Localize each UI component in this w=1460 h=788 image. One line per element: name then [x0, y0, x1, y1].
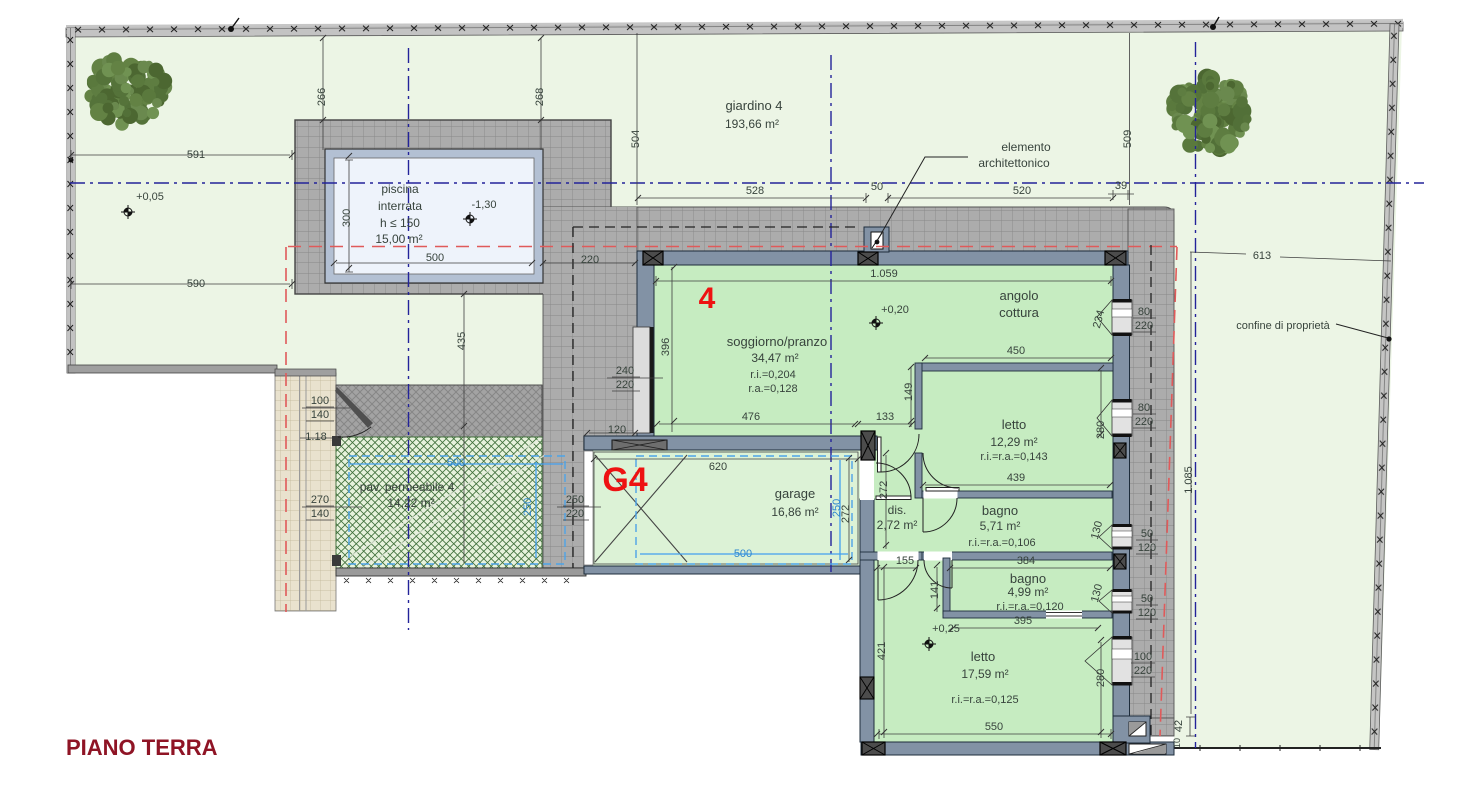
svg-text:letto: letto	[1002, 417, 1027, 432]
svg-text:613: 613	[1253, 250, 1271, 262]
svg-text:384: 384	[1017, 555, 1035, 567]
svg-text:interrata: interrata	[378, 199, 422, 213]
svg-text:+0,25: +0,25	[932, 623, 960, 635]
svg-text:140: 140	[311, 409, 329, 421]
svg-text:4,99 m²: 4,99 m²	[1008, 585, 1049, 599]
svg-text:220: 220	[581, 254, 599, 266]
svg-text:14,22 m²: 14,22 m²	[387, 496, 434, 510]
svg-text:80: 80	[1138, 402, 1150, 414]
svg-text:100: 100	[311, 395, 329, 407]
svg-text:+0,20: +0,20	[881, 304, 909, 316]
svg-text:50: 50	[1141, 593, 1153, 605]
svg-text:250: 250	[566, 494, 584, 506]
svg-text:34,47 m²: 34,47 m²	[751, 351, 798, 365]
svg-text:letto: letto	[971, 649, 996, 664]
svg-text:500: 500	[734, 548, 752, 560]
svg-text:120: 120	[1138, 607, 1156, 619]
svg-text:591: 591	[187, 149, 205, 161]
svg-text:confine di proprietà: confine di proprietà	[1236, 320, 1330, 332]
svg-text:angolo: angolo	[999, 288, 1038, 303]
svg-text:dis.: dis.	[888, 503, 907, 517]
svg-text:439: 439	[1007, 472, 1025, 484]
svg-text:-1,30: -1,30	[471, 199, 496, 211]
svg-text:250: 250	[831, 499, 843, 517]
svg-text:133: 133	[876, 411, 894, 423]
svg-text:80: 80	[1138, 306, 1150, 318]
svg-text:421: 421	[876, 642, 888, 660]
svg-text:cottura: cottura	[999, 305, 1040, 320]
svg-text:r.i.=r.a.=0,143: r.i.=r.a.=0,143	[980, 451, 1047, 463]
svg-text:giardino 4: giardino 4	[725, 98, 782, 113]
svg-text:270: 270	[311, 494, 329, 506]
svg-text:220: 220	[1135, 320, 1153, 332]
svg-text:4: 4	[699, 282, 716, 315]
svg-text:bagno: bagno	[982, 503, 1018, 518]
svg-text:396: 396	[660, 338, 672, 356]
svg-text:39: 39	[1115, 180, 1127, 192]
svg-text:450: 450	[1007, 345, 1025, 357]
svg-text:220: 220	[566, 508, 584, 520]
svg-text:141: 141	[929, 581, 941, 599]
svg-text:220: 220	[616, 379, 634, 391]
svg-text:soggiorno/pranzo: soggiorno/pranzo	[727, 334, 827, 349]
svg-text:395: 395	[1014, 615, 1032, 627]
svg-text:435: 435	[456, 332, 468, 350]
svg-text:590: 590	[187, 278, 205, 290]
svg-text:r.i.=r.a.=0,125: r.i.=r.a.=0,125	[951, 694, 1018, 706]
svg-text:280: 280	[1095, 669, 1107, 687]
svg-text:r.i.=0,204: r.i.=0,204	[750, 369, 796, 381]
svg-text:100: 100	[1134, 651, 1152, 663]
svg-text:1.085: 1.085	[1183, 466, 1195, 494]
svg-text:5,71 m²: 5,71 m²	[980, 519, 1021, 533]
svg-text:42: 42	[1173, 720, 1185, 732]
svg-text:500: 500	[447, 457, 465, 469]
svg-text:r.a.=0,128: r.a.=0,128	[748, 383, 797, 395]
svg-text:140: 140	[311, 508, 329, 520]
svg-text:elemento: elemento	[1001, 140, 1051, 154]
svg-text:bagno: bagno	[1010, 571, 1046, 586]
svg-text:120: 120	[1138, 542, 1156, 554]
svg-text:12,29 m²: 12,29 m²	[990, 435, 1037, 449]
svg-text:155: 155	[896, 555, 914, 567]
svg-text:15,00 m²: 15,00 m²	[375, 232, 422, 246]
svg-text:504: 504	[630, 130, 642, 148]
svg-text:10: 10	[1172, 738, 1182, 748]
svg-text:piscina: piscina	[381, 182, 419, 196]
svg-text:1.059: 1.059	[870, 268, 898, 280]
svg-text:509: 509	[1122, 130, 1134, 148]
svg-text:193,66 m²: 193,66 m²	[725, 117, 779, 131]
svg-text:266: 266	[316, 88, 328, 106]
svg-text:50: 50	[1141, 528, 1153, 540]
svg-text:528: 528	[746, 185, 764, 197]
svg-text:620: 620	[709, 461, 727, 473]
svg-text:550: 550	[985, 721, 1003, 733]
svg-text:220: 220	[1135, 416, 1153, 428]
svg-text:G4: G4	[602, 461, 647, 499]
svg-text:520: 520	[1013, 185, 1031, 197]
svg-text:240: 240	[616, 365, 634, 377]
svg-text:500: 500	[426, 252, 444, 264]
svg-text:+0,05: +0,05	[136, 191, 164, 203]
svg-text:300: 300	[341, 209, 353, 227]
svg-text:50: 50	[871, 181, 883, 193]
svg-text:149: 149	[903, 383, 915, 401]
svg-text:pav. permeabile 4: pav. permeabile 4	[360, 480, 455, 494]
svg-text:272: 272	[878, 481, 890, 499]
svg-text:250: 250	[522, 498, 534, 516]
svg-text:garage: garage	[775, 486, 815, 501]
svg-text:268: 268	[534, 88, 546, 106]
svg-text:220: 220	[1134, 665, 1152, 677]
svg-text:architettonico: architettonico	[978, 156, 1050, 170]
svg-text:17,59 m²: 17,59 m²	[961, 667, 1008, 681]
svg-text:1.18: 1.18	[305, 431, 326, 443]
svg-text:476: 476	[742, 411, 760, 423]
svg-text:16,86 m²: 16,86 m²	[771, 505, 818, 519]
svg-text:r.i.=r.a.=0,120: r.i.=r.a.=0,120	[996, 601, 1063, 613]
svg-text:PIANO TERRA: PIANO TERRA	[66, 735, 218, 760]
svg-text:120: 120	[608, 424, 626, 436]
svg-text:h ≤ 150: h ≤ 150	[380, 216, 420, 230]
svg-text:r.i.=r.a.=0,106: r.i.=r.a.=0,106	[968, 537, 1035, 549]
svg-text:2,72 m²: 2,72 m²	[877, 518, 918, 532]
svg-text:280: 280	[1095, 421, 1107, 439]
